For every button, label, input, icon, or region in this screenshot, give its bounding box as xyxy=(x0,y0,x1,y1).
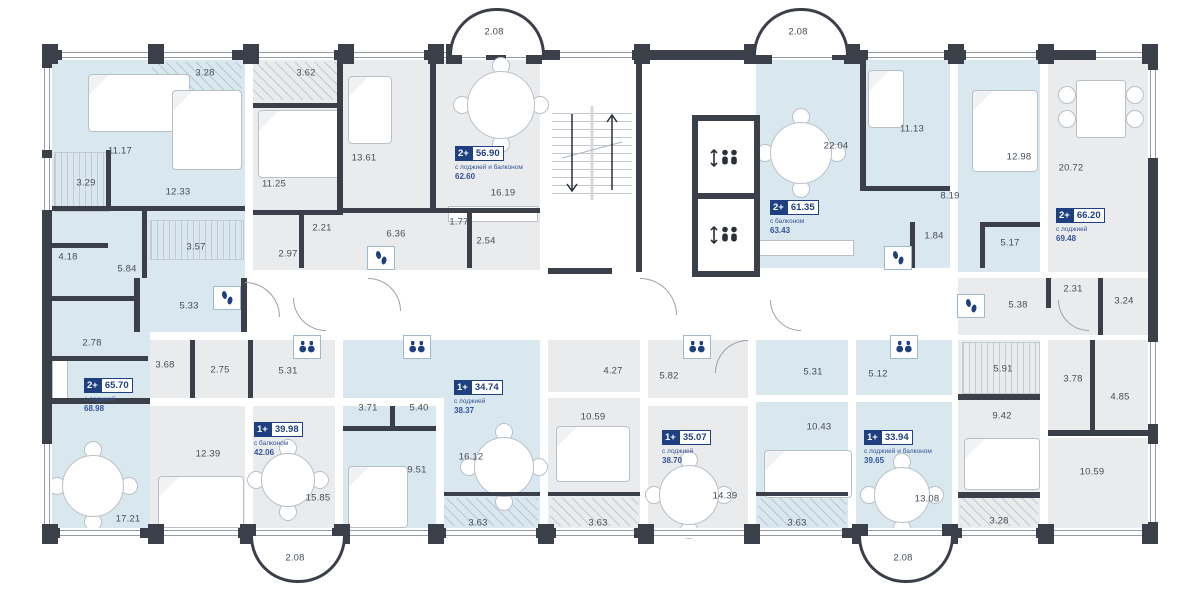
room-area-label: 20.72 xyxy=(1059,163,1084,174)
wall-segment xyxy=(299,212,304,268)
window xyxy=(42,444,52,524)
wall-segment xyxy=(756,492,848,496)
wall-segment xyxy=(1090,340,1095,430)
apartment-type: 2+ xyxy=(1056,208,1073,223)
apartment-total-area: 69.48 xyxy=(1056,234,1105,243)
room-area-label: 3.63 xyxy=(468,518,487,529)
wall-segment xyxy=(548,268,612,274)
wall-segment xyxy=(390,406,395,430)
wall-segment xyxy=(253,103,343,108)
window xyxy=(962,528,1036,538)
room-area-label: 8.19 xyxy=(940,191,959,202)
apartment-type: 1+ xyxy=(662,430,679,445)
wall-segment xyxy=(190,340,195,398)
wall-pillar xyxy=(428,524,444,544)
binoculars-icon xyxy=(293,335,321,359)
wall-segment xyxy=(636,60,642,272)
room-area-label: 1.84 xyxy=(924,231,943,242)
window xyxy=(446,528,536,538)
kitchen-counter xyxy=(52,360,68,402)
window xyxy=(652,528,744,538)
room-area-label: 4.18 xyxy=(58,252,77,263)
apartment-type: 1+ xyxy=(254,422,271,437)
apartment-badge-row: 2+66.20 xyxy=(1056,208,1105,223)
room-area-label: 9.51 xyxy=(407,465,426,476)
room-area-fill xyxy=(756,340,848,395)
room-area-label: 3.62 xyxy=(296,68,315,79)
room-area-label: 5.40 xyxy=(409,403,428,414)
room-area-label: 5.33 xyxy=(179,301,198,312)
wall-pillar xyxy=(1142,44,1158,64)
balcony-dimension-label: 2.08 xyxy=(788,27,807,38)
apartment-badge-row: 1+33.94 xyxy=(864,430,932,445)
apartment-total-area: 39.65 xyxy=(864,456,932,465)
staircase xyxy=(552,106,632,200)
apartment-type: 1+ xyxy=(864,430,881,445)
apartment-total-area: 42.06 xyxy=(254,448,303,457)
bed xyxy=(158,476,244,528)
room-area-label: 5.82 xyxy=(659,371,678,382)
room-area-label: 17.21 xyxy=(116,514,141,525)
wall-pillar xyxy=(1038,524,1054,544)
wall-segment xyxy=(142,211,147,278)
wall-pillar xyxy=(638,524,654,544)
bed xyxy=(556,426,630,482)
room-area-label: 22.04 xyxy=(824,141,849,152)
room-area-label: 12.39 xyxy=(196,449,221,460)
window xyxy=(760,528,842,538)
apartment-subtext: с балконом xyxy=(254,440,303,447)
bed xyxy=(348,76,392,144)
room-area-label: 3.28 xyxy=(195,68,214,79)
room-area-fill xyxy=(548,340,640,392)
chair xyxy=(1126,86,1144,104)
room-area-label: 2.78 xyxy=(82,338,101,349)
window xyxy=(1148,342,1158,424)
room-area-label: 5.91 xyxy=(993,364,1012,375)
bed xyxy=(964,438,1040,490)
apartment-badge-row: 1+39.98 xyxy=(254,422,303,437)
wall-segment xyxy=(1048,430,1148,436)
apartment-area: 39.98 xyxy=(271,422,303,437)
room-area-label: 3.71 xyxy=(358,403,377,414)
elevator xyxy=(692,193,760,277)
room-area-label: 10.43 xyxy=(807,422,832,433)
footprints-icon xyxy=(884,246,912,270)
apartment-type: 1+ xyxy=(454,380,471,395)
wall-pillar xyxy=(243,44,259,64)
window xyxy=(1096,50,1146,60)
room-area-label: 1.77 xyxy=(449,217,468,228)
wall-segment xyxy=(52,206,245,211)
room-area-label: 2.97 xyxy=(278,249,297,260)
wall-segment xyxy=(430,60,436,208)
wall-pillar xyxy=(634,44,650,64)
apartment-badge: 1+35.07с лоджией38.70 xyxy=(662,430,711,465)
room-area-label: 11.25 xyxy=(262,179,286,190)
footprints-icon xyxy=(367,246,395,270)
room-area-label: 10.59 xyxy=(581,412,606,423)
room-area-label: 14.39 xyxy=(713,491,738,502)
room-area-label: 2.31 xyxy=(1063,284,1082,295)
wall-segment xyxy=(248,340,253,398)
apartment-area: 66.20 xyxy=(1073,208,1105,223)
apartment-type: 2+ xyxy=(770,200,787,215)
apartment-subtext: с лоджией xyxy=(662,448,711,455)
wall-pillar xyxy=(1142,524,1158,544)
apartment-badge: 2+65.70с лоджией68.98 xyxy=(84,378,133,413)
wall-segment xyxy=(860,60,866,188)
apartment-area: 65.70 xyxy=(101,378,133,393)
window xyxy=(1052,528,1146,538)
round-table xyxy=(770,122,832,184)
apartment-badge: 2+66.20с лоджией69.48 xyxy=(1056,208,1105,243)
room-area-label: 3.68 xyxy=(155,360,174,371)
apartment-type: 2+ xyxy=(455,146,472,161)
apartment-subtext: с балконом xyxy=(770,218,819,225)
room-area-label: 3.29 xyxy=(76,178,95,189)
window xyxy=(42,68,52,150)
window xyxy=(966,50,1036,60)
apartment-type: 2+ xyxy=(84,378,101,393)
wall-segment xyxy=(958,492,1040,498)
apartment-area: 33.94 xyxy=(881,430,913,445)
room-area-fill xyxy=(1048,438,1148,528)
apartment-badge: 2+56.90с лоджией и балконом62.60 xyxy=(455,146,523,181)
window xyxy=(60,528,140,538)
wall-segment xyxy=(134,278,140,332)
wall-segment xyxy=(958,394,1040,400)
room-area-label: 5.84 xyxy=(117,264,136,275)
room-area-label: 16.12 xyxy=(459,452,484,463)
apartment-total-area: 38.37 xyxy=(454,406,503,415)
window xyxy=(160,50,232,60)
kitchen-counter xyxy=(756,240,854,256)
wall-segment xyxy=(253,210,343,215)
room-area-label: 2.21 xyxy=(312,223,331,234)
room-area-label: 2.54 xyxy=(476,236,495,247)
room-area-label: 4.85 xyxy=(1110,392,1129,403)
apartment-area: 34.74 xyxy=(471,380,503,395)
apartment-badge: 1+34.74с лоджией38.37 xyxy=(454,380,503,415)
wall-pillar xyxy=(1038,44,1054,64)
wall-pillar xyxy=(42,44,58,64)
wall-segment xyxy=(860,186,950,191)
room-area-label: 3.63 xyxy=(787,518,806,529)
dining-table xyxy=(1076,80,1126,138)
round-table xyxy=(467,71,535,139)
apartment-total-area: 62.60 xyxy=(455,172,523,181)
wall-segment xyxy=(980,222,985,268)
bed xyxy=(764,450,852,498)
bed xyxy=(258,110,342,178)
bed xyxy=(172,90,242,170)
round-table xyxy=(474,437,534,497)
chair xyxy=(1058,86,1076,104)
apartment-badge: 1+39.98с балконом42.06 xyxy=(254,422,303,457)
room-area-label: 3.63 xyxy=(588,518,607,529)
room-area-label: 11.13 xyxy=(900,124,924,135)
room-area-label: 16.19 xyxy=(491,188,516,199)
room-area-label: 6.36 xyxy=(386,229,405,240)
room-area-label: 12.33 xyxy=(166,187,191,198)
apartment-subtext: с лоджией xyxy=(84,396,133,403)
wall-segment xyxy=(444,492,540,496)
wardrobe-hatch xyxy=(150,220,244,260)
balcony-dimension-label: 2.08 xyxy=(285,553,304,564)
room-area-fill xyxy=(245,278,952,332)
footprints-icon xyxy=(957,294,985,318)
footprints-icon xyxy=(213,286,241,310)
apartment-area: 61.35 xyxy=(787,200,819,215)
loggia-hatch xyxy=(444,498,538,526)
apartment-badge-row: 2+56.90 xyxy=(455,146,523,161)
apartment-badge-row: 1+34.74 xyxy=(454,380,503,395)
binoculars-icon xyxy=(403,335,431,359)
room-area-label: 5.31 xyxy=(803,367,822,378)
chair xyxy=(1126,110,1144,128)
apartment-subtext: с лоджией и балконом xyxy=(455,164,523,171)
wall-pillar xyxy=(148,524,164,544)
wall-segment xyxy=(52,356,148,361)
apartment-subtext: с лоджией xyxy=(454,398,503,405)
balcony-dimension-label: 2.08 xyxy=(484,27,503,38)
room-area-label: 3.28 xyxy=(989,516,1008,527)
apartment-total-area: 38.70 xyxy=(662,456,711,465)
round-table xyxy=(659,465,719,525)
wall-segment xyxy=(548,492,640,496)
window xyxy=(556,528,634,538)
room-area-label: 5.31 xyxy=(278,366,297,377)
window xyxy=(350,50,424,60)
room-area-fill xyxy=(1048,340,1148,430)
wall-segment xyxy=(1098,278,1103,335)
wall-segment xyxy=(985,222,1040,227)
window xyxy=(560,50,632,60)
window xyxy=(42,158,52,210)
wall-segment xyxy=(52,243,108,248)
room-area-label: 13.61 xyxy=(352,153,377,164)
room-area-label: 9.42 xyxy=(992,411,1011,422)
window xyxy=(158,528,238,538)
binoculars-icon xyxy=(683,335,711,359)
apartment-badge: 1+33.94с лоджией и балконом39.65 xyxy=(864,430,932,465)
wall-pillar xyxy=(428,44,444,64)
room-area-label: 3.78 xyxy=(1063,374,1082,385)
wall-segment xyxy=(337,60,343,210)
window xyxy=(1148,70,1158,158)
room-area-label: 5.12 xyxy=(868,369,887,380)
wall-segment xyxy=(1046,278,1051,308)
window xyxy=(868,50,944,60)
floor-plan: 2.082.082.082.083.2811.173.2912.333.574.… xyxy=(0,0,1200,600)
window xyxy=(62,50,148,60)
apartment-subtext: с лоджией xyxy=(1056,226,1105,233)
wall-pillar xyxy=(538,524,554,544)
wall-pillar xyxy=(148,44,164,64)
apartment-badge: 2+61.35с балконом63.43 xyxy=(770,200,819,235)
room-area-label: 12.98 xyxy=(1007,152,1032,163)
room-area-label: 13.08 xyxy=(915,494,940,505)
apartment-subtext: с лоджией и балконом xyxy=(864,448,932,455)
wall-segment xyxy=(343,208,540,213)
chair xyxy=(1058,110,1076,128)
balcony-dimension-label: 2.08 xyxy=(893,553,912,564)
room-area-label: 10.59 xyxy=(1080,467,1105,478)
apartment-area: 56.90 xyxy=(472,146,504,161)
window xyxy=(256,50,334,60)
window xyxy=(350,528,432,538)
apartment-total-area: 68.98 xyxy=(84,404,133,413)
room-area-label: 2.75 xyxy=(210,365,229,376)
wall-pillar xyxy=(42,524,58,544)
room-area-label: 5.38 xyxy=(1008,300,1027,311)
bed xyxy=(348,466,408,528)
wall-segment xyxy=(52,296,140,301)
window xyxy=(1148,444,1158,522)
room-area-label: 4.27 xyxy=(603,366,622,377)
room-area-label: 3.57 xyxy=(186,242,205,253)
room-area-label: 3.24 xyxy=(1114,296,1133,307)
wall-pillar xyxy=(948,44,964,64)
room-area-fill xyxy=(958,278,1148,335)
bed xyxy=(868,70,904,128)
wall-segment xyxy=(106,150,111,208)
room-area-label: 15.85 xyxy=(306,493,331,504)
elevator xyxy=(692,115,760,201)
round-table xyxy=(62,455,124,517)
apartment-badge-row: 2+65.70 xyxy=(84,378,133,393)
apartment-area: 35.07 xyxy=(679,430,711,445)
binoculars-icon xyxy=(890,335,918,359)
apartment-badge-row: 1+35.07 xyxy=(662,430,711,445)
wall-pillar xyxy=(338,44,354,64)
apartment-total-area: 63.43 xyxy=(770,226,819,235)
room-area-label: 5.17 xyxy=(1000,238,1019,249)
apartment-badge-row: 2+61.35 xyxy=(770,200,819,215)
room-area-label: 11.17 xyxy=(108,146,132,157)
wall-pillar xyxy=(744,524,760,544)
